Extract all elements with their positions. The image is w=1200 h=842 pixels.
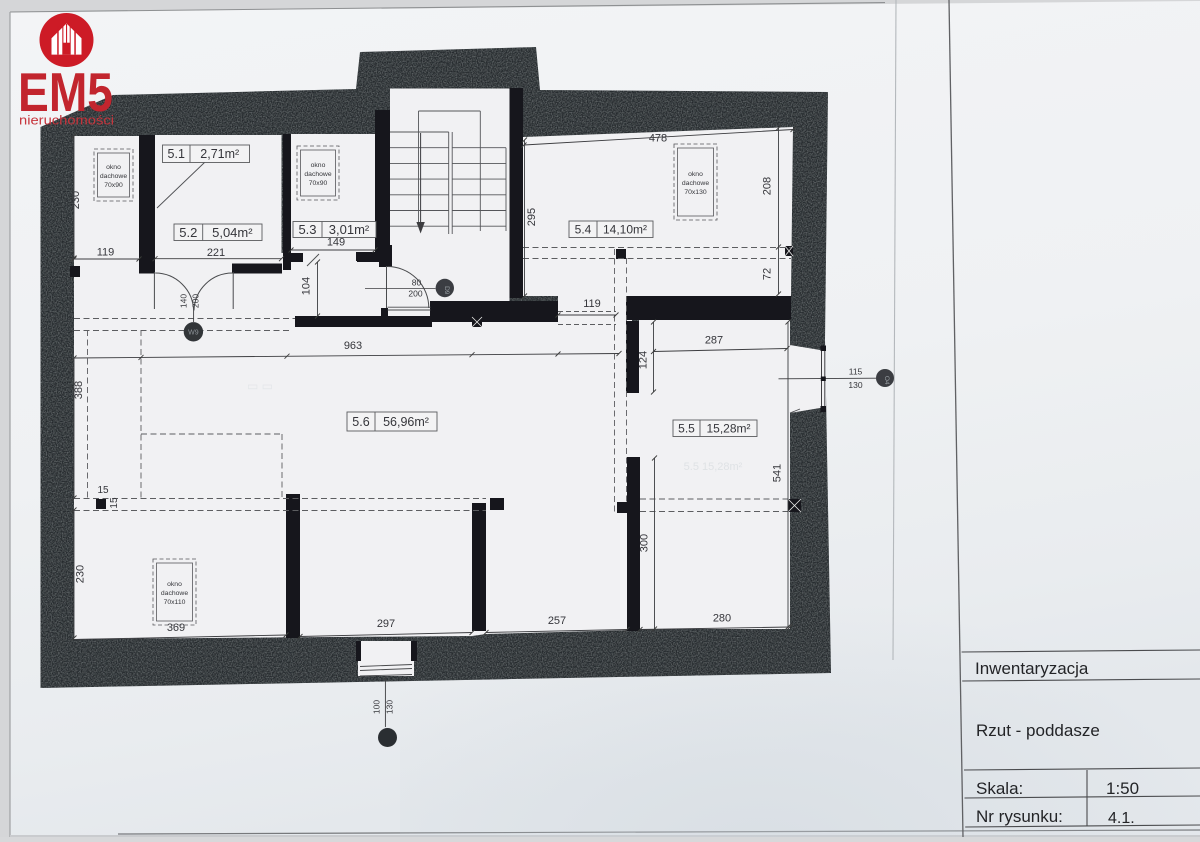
svg-text:119: 119 — [97, 247, 115, 259]
svg-text:70x90: 70x90 — [104, 182, 123, 189]
svg-text:D9: D9 — [443, 286, 450, 295]
svg-text:O4: O4 — [883, 376, 890, 385]
svg-text:5.6: 5.6 — [352, 415, 369, 429]
svg-text:200: 200 — [191, 294, 201, 308]
svg-text:300: 300 — [639, 534, 651, 552]
svg-text:104: 104 — [301, 277, 313, 295]
svg-text:Nr rysunku:: Nr rysunku: — [976, 807, 1063, 826]
svg-text:okno: okno — [311, 162, 326, 169]
svg-text:221: 221 — [207, 247, 225, 259]
svg-text:124: 124 — [638, 351, 650, 369]
svg-text:4.1.: 4.1. — [1108, 810, 1135, 827]
svg-text:dachowe: dachowe — [100, 173, 127, 180]
svg-text:14,10m²: 14,10m² — [603, 222, 647, 236]
svg-text:dachowe: dachowe — [304, 171, 331, 178]
svg-text:15: 15 — [109, 497, 120, 509]
svg-text:230: 230 — [70, 191, 82, 209]
svg-text:70x110: 70x110 — [164, 599, 186, 606]
svg-text:5.3: 5.3 — [298, 222, 316, 237]
svg-text:200: 200 — [408, 289, 422, 299]
svg-text:nieruchomości: nieruchomości — [19, 113, 114, 128]
svg-text:369: 369 — [167, 622, 185, 634]
svg-text:70x90: 70x90 — [309, 180, 328, 187]
svg-text:▭ ▭: ▭ ▭ — [247, 379, 273, 393]
svg-text:130: 130 — [848, 380, 862, 390]
svg-text:72: 72 — [762, 268, 774, 280]
svg-text:okno: okno — [106, 164, 121, 171]
svg-text:297: 297 — [377, 618, 395, 630]
svg-text:5.2: 5.2 — [179, 225, 197, 240]
svg-text:Rzut - poddasze: Rzut - poddasze — [976, 721, 1100, 740]
svg-text:280: 280 — [713, 613, 731, 625]
svg-text:3,01m²: 3,01m² — [329, 222, 370, 237]
svg-text:130: 130 — [385, 700, 395, 714]
svg-text:5.1: 5.1 — [168, 147, 185, 161]
svg-text:5,04m²: 5,04m² — [212, 225, 253, 240]
svg-text:okno: okno — [688, 171, 703, 178]
svg-text:295: 295 — [526, 208, 538, 226]
svg-text:388: 388 — [73, 381, 85, 399]
svg-text:100: 100 — [372, 700, 382, 714]
svg-text:okno: okno — [167, 581, 182, 588]
svg-text:dachowe: dachowe — [682, 180, 709, 187]
svg-text:5.4: 5.4 — [575, 222, 592, 236]
svg-text:149: 149 — [327, 237, 345, 249]
svg-text:5.5: 5.5 — [678, 421, 695, 435]
svg-text:Inwentaryzacja: Inwentaryzacja — [975, 659, 1089, 678]
svg-text:70x130: 70x130 — [684, 189, 707, 196]
svg-text:80: 80 — [412, 278, 422, 288]
svg-text:1:50: 1:50 — [1106, 779, 1139, 798]
svg-text:dachowe: dachowe — [161, 590, 188, 597]
svg-text:15: 15 — [97, 485, 109, 496]
svg-text:541: 541 — [772, 464, 784, 482]
svg-text:287: 287 — [705, 335, 723, 347]
svg-text:257: 257 — [548, 615, 566, 627]
svg-text:478: 478 — [649, 133, 667, 145]
svg-text:115: 115 — [849, 367, 863, 377]
svg-text:5.5 15,28m²: 5.5 15,28m² — [684, 461, 743, 473]
svg-text:140: 140 — [179, 294, 189, 308]
svg-text:119: 119 — [583, 298, 601, 310]
svg-text:208: 208 — [762, 177, 774, 195]
svg-text:963: 963 — [344, 340, 362, 352]
svg-text:2,71m²: 2,71m² — [200, 147, 239, 161]
svg-text:56,96m²: 56,96m² — [383, 415, 429, 429]
svg-text:230: 230 — [75, 565, 87, 583]
svg-text:W9: W9 — [188, 329, 199, 336]
svg-text:Skala:: Skala: — [976, 779, 1023, 798]
svg-text:15,28m²: 15,28m² — [706, 421, 750, 435]
